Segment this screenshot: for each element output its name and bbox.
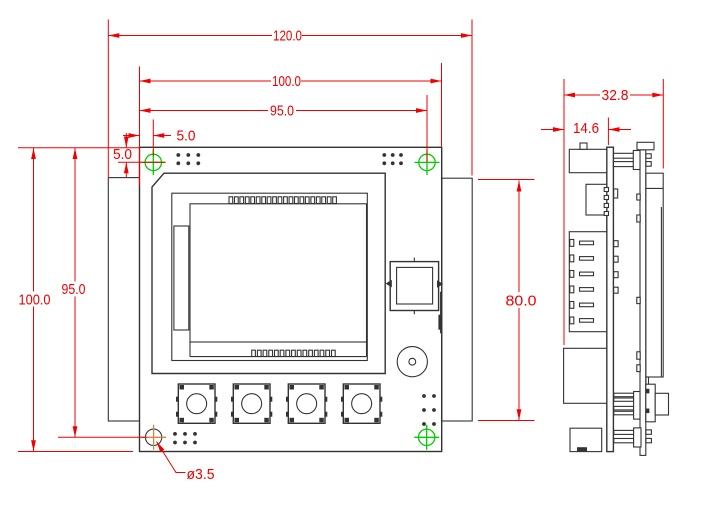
button-side-leg [215,412,217,417]
pin-dot [382,161,386,165]
dim-overall-width: 120.0 [273,27,302,44]
button-corner-leg [319,418,324,423]
lcd-pad [292,350,296,356]
lcd-pad [289,197,293,204]
dim-hole-span-x: 95.0 [270,102,294,119]
dimension-arrowhead [652,93,663,98]
button-corner-leg [319,385,324,390]
lcd-pad [256,197,260,204]
lcd-pad [295,197,299,204]
lcd-pad [275,350,279,356]
lcd-pad [316,197,320,204]
button-corner-leg [264,418,269,423]
button-side-leg [286,412,288,417]
pin-dot [382,153,386,157]
button-side-leg [176,412,178,417]
lcd-pad [251,197,255,204]
side-component-pin [604,212,608,216]
lcd-pad [305,197,309,204]
side-sd-slot [564,348,607,403]
lcd-pad [235,197,239,204]
lcd-pad [322,197,326,204]
button-side-leg [341,412,343,417]
lcd-pad [284,197,288,204]
lcd-pad [332,350,336,356]
exp-pin [570,286,574,293]
front-view [108,147,472,451]
lcd-pad [326,350,330,356]
pin-dot [183,432,187,436]
button-side-leg [286,397,288,402]
dim-board-width: 100.0 [272,73,301,90]
side-pcb [607,147,614,451]
side-component-pin [604,188,608,192]
side-bottom-connector-mark [577,447,587,451]
side-top-connector [569,149,606,172]
button-side-leg [231,412,233,417]
dimension-arrowhead [564,93,575,98]
button-corner-leg [264,385,269,390]
dimension-arrowhead [461,33,472,38]
button-side-leg [270,412,272,417]
side-component-pin [604,196,608,200]
dimension-arrowhead [73,426,78,437]
lcd-pad [240,197,244,204]
button-corner-leg [345,385,350,390]
button-corner-leg [290,385,295,390]
pin-dot [173,441,177,445]
exp-pin [580,272,594,276]
side-lcd-board-cap [637,142,654,150]
exp-pin [580,257,594,261]
side-exp-header [569,232,606,332]
dimension-arrowhead [73,148,78,159]
button-corner-leg [209,385,214,390]
lcd-pad [252,350,256,356]
pin-dot [432,408,436,412]
side-lcd-module [646,173,663,377]
dim-hole-span-y: 95.0 [62,281,86,298]
dimension-arrowhead [609,127,620,132]
dim-hole-offset-y: 5.0 [113,146,132,163]
dimension-arrowhead [31,148,36,159]
pin-dot [196,161,200,165]
lcd-left-tab [174,226,189,330]
dimension-arrowhead [108,33,119,38]
button-side-leg [325,397,327,402]
exp-pin [570,255,574,262]
pin-dot [186,161,190,165]
exp-pin [570,240,574,247]
button-corner-leg [374,418,379,423]
pin-dot [432,394,436,398]
lcd-pad [245,197,249,204]
side-component-pin [604,204,608,208]
side-encoder-shaft [655,393,668,415]
lcd-pads-bottom [252,350,336,356]
button-side-leg [176,397,178,402]
lcd-pad [267,197,271,204]
lcd-pad [278,197,282,204]
dimension-arrowhead [140,79,151,84]
lcd-pad [327,197,331,204]
button-side-leg [325,412,327,417]
pin-dot [193,441,197,445]
lcd-pad [273,197,277,204]
lcd-pad [263,350,267,356]
pin-dot [422,408,426,412]
dimension-arrowhead [124,162,129,173]
dimension-arrowhead [416,108,427,113]
through-pin [614,241,618,247]
side-lcd-board [640,150,646,456]
dimension-arrowhead [517,409,522,420]
drawing-sheet: 120.0 100.0 95.0 5.0 5.0 100.0 95.0 80.0… [0,0,702,517]
dim-board-height: 100.0 [19,292,51,309]
button-side-leg [270,397,272,402]
side-through-pin [614,189,618,198]
pin-dot [173,432,177,436]
lcd-pad [311,197,315,204]
button-side-leg [341,397,343,402]
pin-dot [422,394,426,398]
dimension-arrowhead [517,181,522,192]
dim-rear-depth: 14.6 [573,120,599,137]
pin-dot [176,161,180,165]
dimension-arrowhead [31,440,36,451]
left-mounting-wing [108,178,139,421]
exp-pin [570,317,574,324]
button-corner-leg [209,418,214,423]
side-top-stub [580,143,587,149]
lcd-pad [300,197,304,204]
button-side-leg [215,397,217,402]
dimension-arrowhead [431,79,442,84]
button-corner-leg [235,385,240,390]
pin-dot [176,153,180,157]
lcd-pad [262,197,266,204]
pin-dot [391,153,395,157]
lcd-pad [229,197,233,204]
through-pin [614,287,618,293]
lcd-pad [286,350,290,356]
dimension-arrowhead [129,133,140,138]
pin-dot [183,441,187,445]
button-corner-leg [235,418,240,423]
exp-pin [580,319,594,323]
side-view [564,142,669,455]
dim-hole-offset-x: 5.0 [177,127,196,144]
exp-pin [580,288,594,292]
right-mounting-wing [442,178,473,421]
button-side-leg [380,397,382,402]
dimension-arrowhead [553,127,564,132]
lcd-pad [309,350,313,356]
exp-pin [570,271,574,278]
through-pin [614,256,618,262]
pin-dot [196,153,200,157]
button-corner-leg [345,418,350,423]
pin-dot [399,153,403,157]
pin-dot [422,422,426,426]
dim-hole-diameter: ø3.5 [187,466,215,483]
lcd-pad [333,197,337,204]
pin-dot [186,153,190,157]
pin-dot [391,161,395,165]
side-component [586,184,607,215]
pin-dot [399,161,403,165]
lcd-pad [297,350,301,356]
button-side-leg [231,397,233,402]
button-corner-leg [180,418,185,423]
button-side-leg [380,412,382,417]
dim-side-tab-height: 80.0 [506,293,537,310]
pin-dot [193,432,197,436]
dim-overall-depth: 32.8 [602,87,629,104]
lcd-pad [303,350,307,356]
pin-dot [432,422,436,426]
lcd-pad [269,350,273,356]
button-corner-leg [374,385,379,390]
lcd-pad [320,350,324,356]
button-corner-leg [180,385,185,390]
exp-pin [570,302,574,309]
exp-pin [580,241,594,245]
through-pin [614,272,618,278]
exp-pin [580,303,594,307]
button-corner-leg [290,418,295,423]
lcd-pad [257,350,261,356]
lcd-pad [314,350,318,356]
lcd-pad [280,350,284,356]
dimension-drawing: 120.0 100.0 95.0 5.0 5.0 100.0 95.0 80.0… [0,0,702,517]
dimension-arrowhead [153,133,164,138]
dimension-arrowhead [140,108,151,113]
